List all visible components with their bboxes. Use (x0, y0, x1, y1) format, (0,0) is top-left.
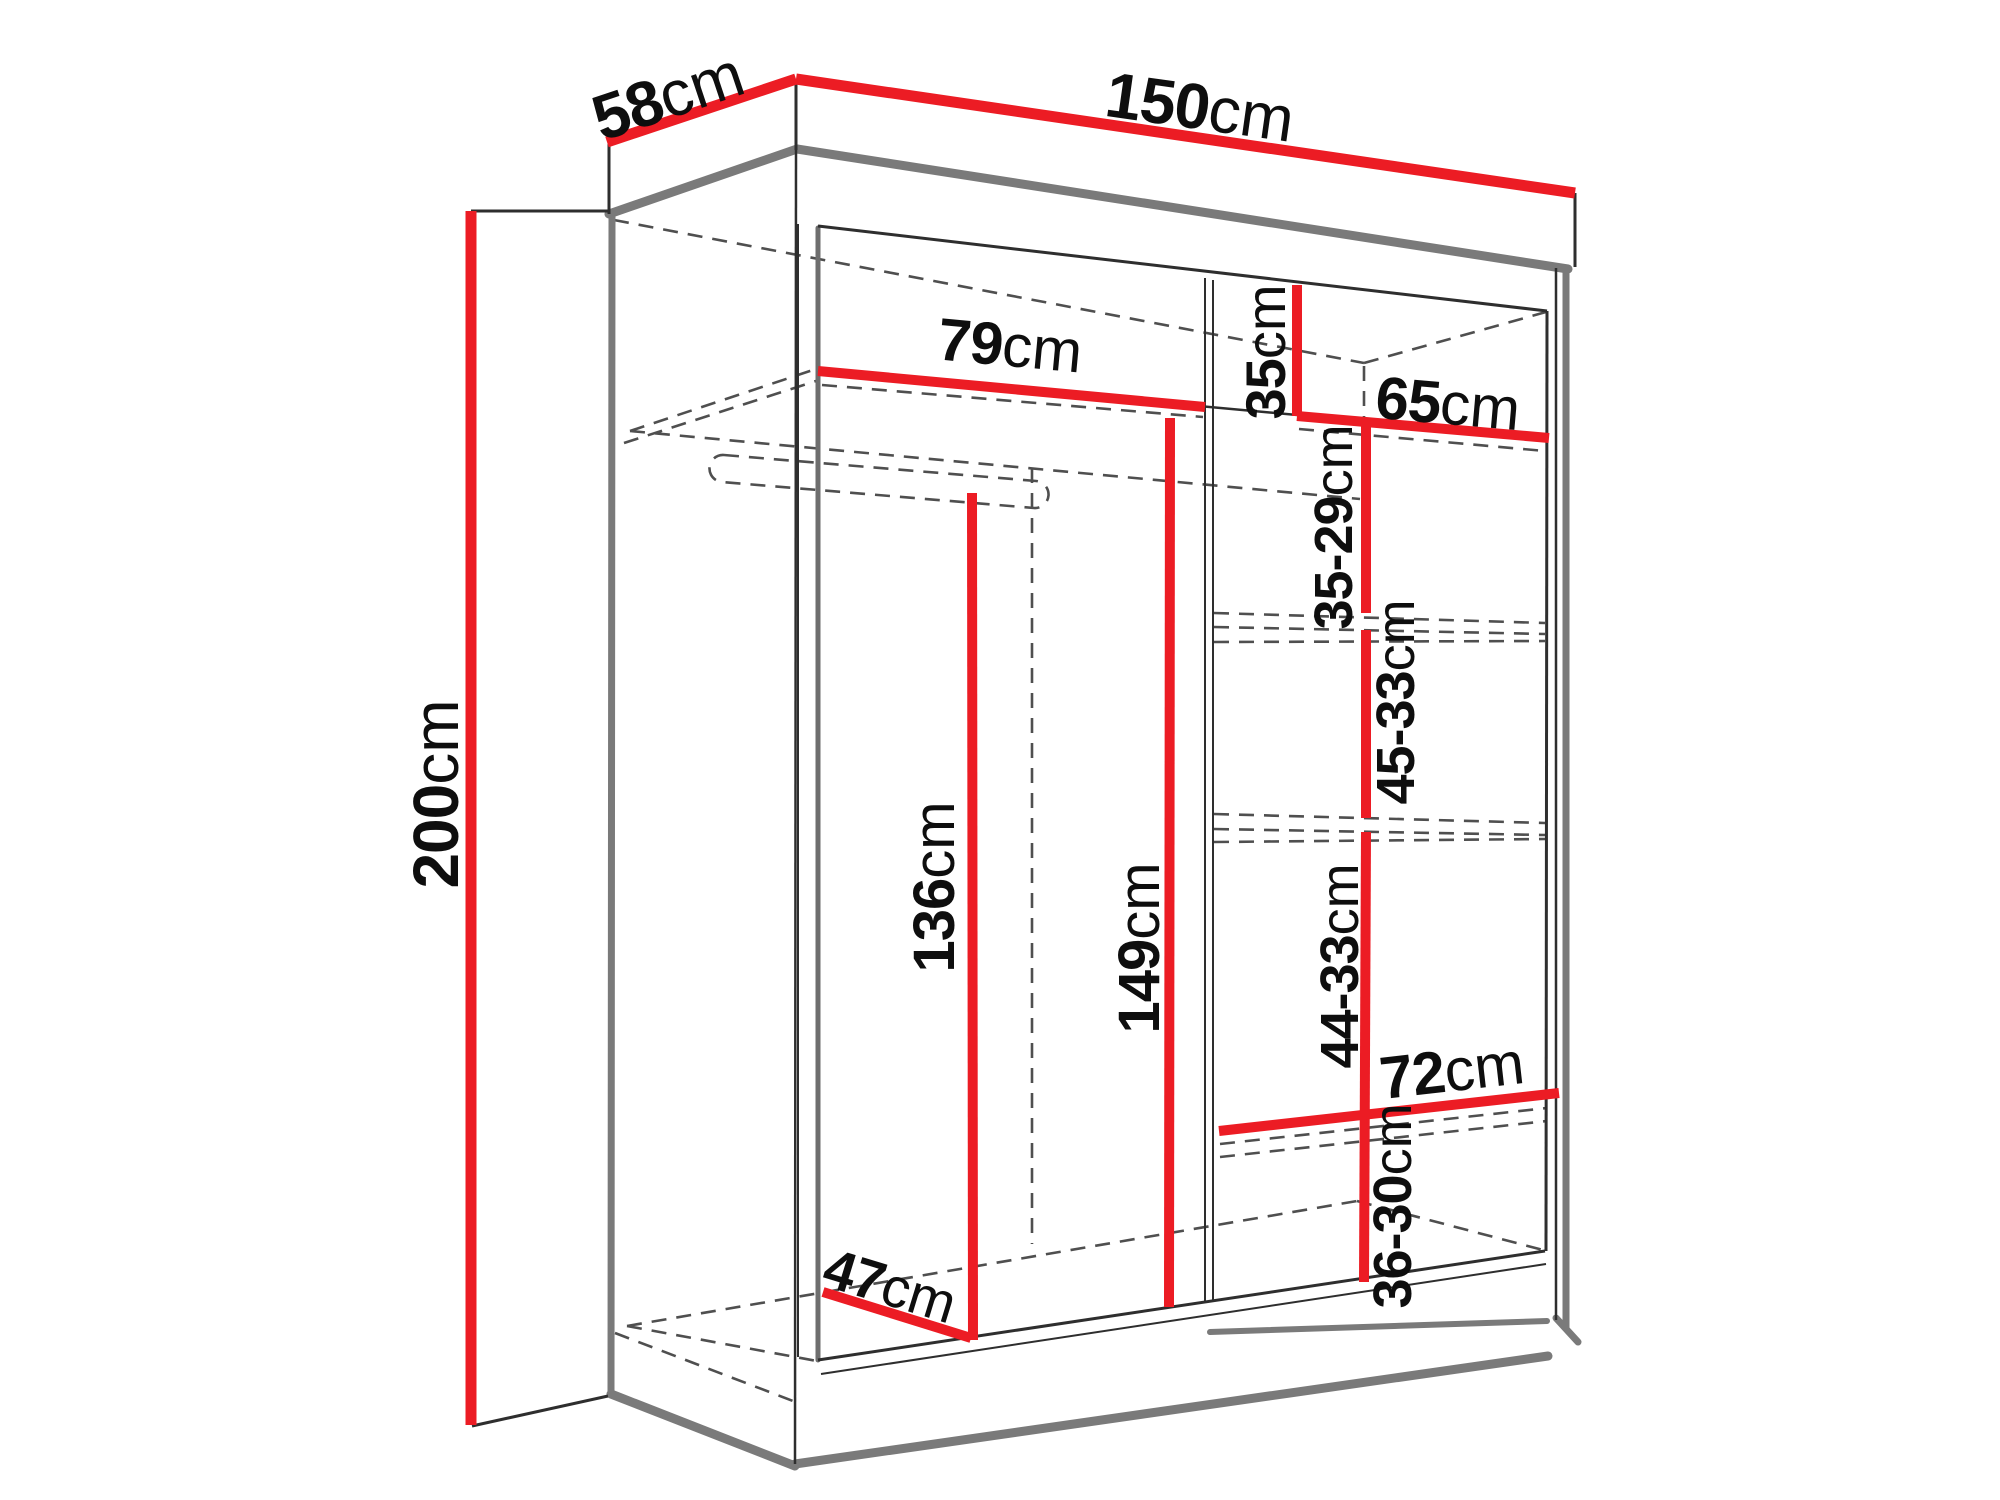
cornice-bottom-front-edge (797, 149, 1568, 269)
dim-unit: cm (1363, 1103, 1423, 1175)
dim-unit: cm (999, 311, 1085, 385)
dim-unit: cm (1438, 369, 1524, 443)
dim-value: 35-29 (1304, 496, 1364, 629)
plinth-bottom-edge (795, 1356, 1548, 1464)
hanging-rail (709, 455, 1048, 508)
top-shelf-left-depth-2 (624, 381, 816, 443)
side-panel-bottom-edge (611, 1394, 795, 1466)
dim-value: 200 (400, 785, 472, 889)
shelf-b-back (1214, 839, 1545, 842)
shelf-b-front (1214, 814, 1545, 823)
dim-label-hang-height: 136cm (906, 801, 964, 972)
back-left-outer-edge (611, 216, 612, 1394)
dim-unit: cm (1234, 285, 1297, 360)
shelf-b-thickness (1214, 829, 1545, 835)
dim-line-hang-136 (972, 493, 973, 1340)
dim-label-mid-height: 149cm (1111, 862, 1169, 1033)
dim-unit: cm (1107, 862, 1172, 939)
dim-label-bottom-width: 72cm (1377, 1033, 1528, 1109)
dim-unit: cm (1204, 73, 1299, 156)
dim-label-gap1: 35-29cm (1307, 424, 1361, 629)
dim-label-left-width: 79cm (935, 309, 1085, 382)
wardrobe-line-art (0, 0, 2000, 1500)
dim-label-right-width: 65cm (1373, 368, 1522, 440)
dim-value: 35 (1234, 359, 1297, 419)
dim-value: 136 (902, 879, 967, 973)
dim-value: 45-33 (1366, 671, 1426, 804)
top-right-depth-edge (1364, 312, 1546, 363)
dim-unit: cm (400, 699, 472, 784)
dim-label-top-shelf: 35cm (1238, 285, 1294, 420)
dim-label-gap4: 36-30cm (1366, 1103, 1420, 1308)
dim-label-height: 200cm (404, 699, 468, 888)
height-extension-bottom (472, 1396, 608, 1426)
wardrobe-dimension-diagram: 58cm 150cm 200cm 79cm 35cm 65cm 35-29cm … (0, 0, 2000, 1500)
front-left-outer-edge (795, 150, 796, 1464)
dim-label-gap3: 44-33cm (1313, 863, 1367, 1068)
dim-unit: cm (1310, 863, 1370, 935)
dim-label-gap2: 45-33cm (1369, 599, 1423, 804)
bottom-left-depth (627, 1326, 817, 1361)
dim-unit: cm (1304, 424, 1364, 496)
base-step-edge (1210, 1321, 1547, 1332)
dim-value: 79 (935, 305, 1006, 378)
dim-unit: cm (902, 801, 967, 878)
top-shelf-left-depth (630, 369, 816, 431)
dim-unit: cm (1366, 599, 1426, 671)
right-inner-edge (1546, 311, 1547, 1251)
opening-top-edge (818, 226, 1547, 311)
dim-value: 149 (1107, 940, 1172, 1034)
dim-value: 65 (1373, 364, 1443, 436)
side-panel-bottom-dashed (615, 1333, 793, 1401)
dim-value: 44-33 (1310, 935, 1370, 1068)
back-bottom-edge (627, 1201, 1357, 1326)
cornice-bottom-left-edge (609, 149, 797, 214)
dim-unit: cm (1441, 1029, 1528, 1105)
top-shelf-back-edge (630, 431, 1360, 499)
dim-value: 72 (1376, 1038, 1448, 1112)
dim-value: 150 (1101, 58, 1214, 144)
dim-value: 36-30 (1363, 1175, 1423, 1308)
